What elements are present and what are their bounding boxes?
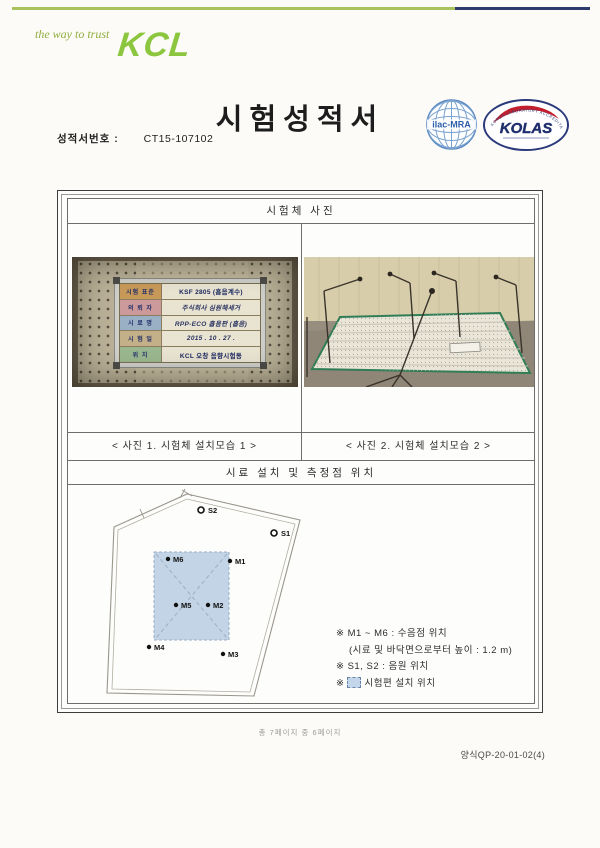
report-number: 성적서번호 : CT15-107102 xyxy=(57,131,213,146)
reverberation-room-photo xyxy=(304,257,534,387)
mic-point-m1 xyxy=(228,559,232,563)
report-page: the way to trust KCL 시험성적서 성적서번호 : CT15-… xyxy=(0,0,600,848)
report-table: 시험체 사진 시험 표준 KS xyxy=(67,198,535,704)
source-label-s1: S1 xyxy=(281,529,290,538)
legend-panel-text: 시험편 설치 위치 xyxy=(364,678,435,689)
photo-vignette xyxy=(72,257,298,387)
caption-row: < 사진 1. 시험체 설치모습 1 > < 사진 2. 시험체 설치모습 2 … xyxy=(68,432,534,460)
report-frame: 시험체 사진 시험 표준 KS xyxy=(57,190,543,713)
page-count: 총 7페이지 중 6페이지 xyxy=(0,727,600,738)
source-point-s2 xyxy=(198,507,204,513)
panel-swatch-icon xyxy=(347,677,361,688)
legend-line-panel: ※시험편 설치 위치 xyxy=(336,676,512,693)
mic-point-m6 xyxy=(166,557,170,561)
mic-point-m5 xyxy=(174,603,178,607)
kolas-label: KOLAS xyxy=(500,120,553,137)
section-header-diagram: 시료 설치 및 측정점 위치 xyxy=(68,460,534,485)
mic-label-m2: M2 xyxy=(213,601,223,610)
section-header-photos: 시험체 사진 xyxy=(68,199,534,224)
mic-point-m4 xyxy=(147,645,151,649)
ilac-mra-label: ilac-MRA xyxy=(432,120,471,130)
mic-point-m2 xyxy=(206,603,210,607)
report-number-label: 성적서번호 : xyxy=(57,133,119,145)
legend-line-sources: ※ S1, S2 : 음원 위치 xyxy=(336,659,512,676)
diagram-cell: S2 S1 M6 M1 M5 M2 M4 M3 xyxy=(68,486,534,704)
source-point-s1 xyxy=(271,530,277,536)
ilac-mra-logo-icon: ilac-MRA xyxy=(424,97,479,152)
photo2-caption: < 사진 2. 시험체 설치모습 2 > xyxy=(302,433,535,461)
legend-line-height: (시료 및 바닥면으로부터 높이 : 1.2 m) xyxy=(336,643,512,660)
kcl-logo: the way to trust KCL xyxy=(35,26,191,65)
mic-label-m3: M3 xyxy=(228,650,238,659)
form-number: 양식QP-20-01-02(4) xyxy=(461,748,545,761)
top-rule-navy xyxy=(455,7,590,10)
photo-specimen-1: 시험 표준 KSF 2805 (흡음계수) 의 뢰 자 주식회사 심원해세거 시… xyxy=(72,257,298,387)
top-rule-green xyxy=(12,7,455,10)
brand-name: KCL xyxy=(116,26,193,65)
mic-label-m6: M6 xyxy=(173,555,183,564)
photo-divider xyxy=(301,224,302,460)
mic-point-m3 xyxy=(221,652,225,656)
report-number-value: CT15-107102 xyxy=(144,133,214,145)
source-label-s2: S2 xyxy=(208,506,217,515)
legend-panel-prefix: ※ xyxy=(336,678,344,689)
mic-label-m1: M1 xyxy=(235,557,245,566)
mic-label-m4: M4 xyxy=(154,643,165,652)
photo-specimen-2 xyxy=(304,257,534,387)
mic-label-m5: M5 xyxy=(181,601,191,610)
legend-line-mics: ※ M1 ~ M6 : 수음점 위치 xyxy=(336,626,512,643)
diagram-legend: ※ M1 ~ M6 : 수음점 위치 (시료 및 바닥면으로부터 높이 : 1.… xyxy=(336,626,512,692)
brand-tagline: the way to trust xyxy=(35,27,109,42)
photo1-caption: < 사진 1. 시험체 설치모습 1 > xyxy=(68,433,301,461)
kolas-logo-icon: KOREA LABORATORY ACCREDITATION SCHEME KO… xyxy=(481,97,571,153)
